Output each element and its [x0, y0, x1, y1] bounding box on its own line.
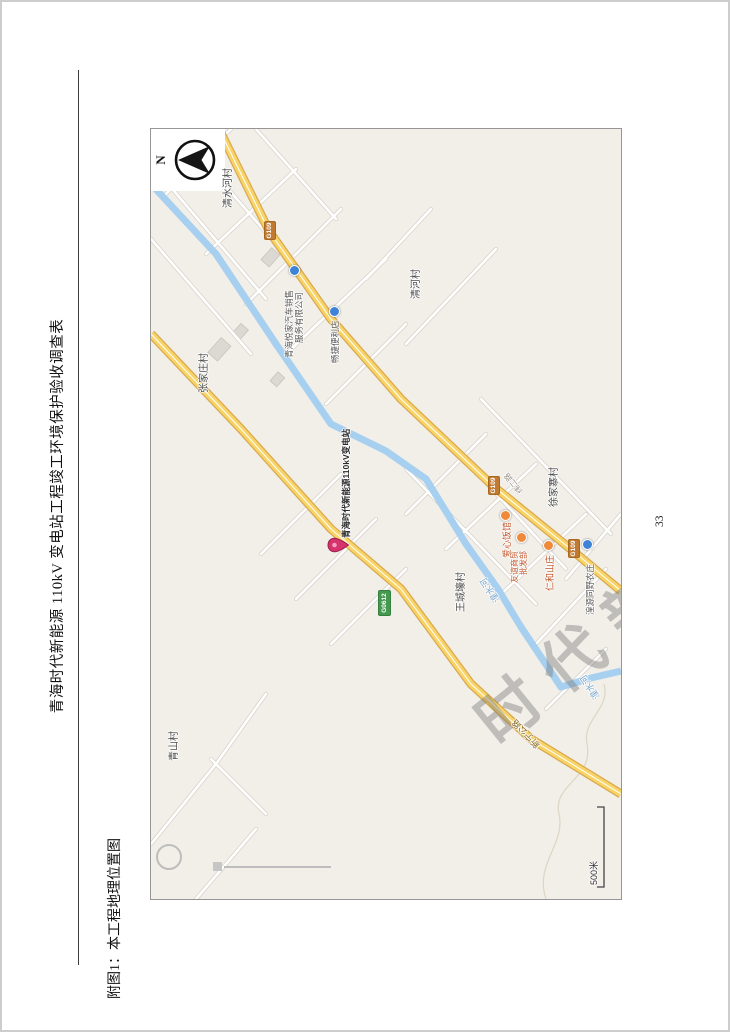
rotated-sheet: 青海时代新能源 110kV 变电站工程竣工环境保护验收调查表 附图1：本工程地理…: [0, 0, 730, 1032]
page-title: 青海时代新能源 110kV 变电站工程竣工环境保护验收调查表: [46, 0, 67, 1032]
road-shield-g109-3: G109: [568, 539, 580, 558]
map-label-qingshuihe-village: 清水河村: [219, 168, 234, 208]
map-label-shop-line2: 批发部: [518, 551, 529, 575]
map-label-convenience-store: 畅捷便利店: [329, 320, 341, 363]
poi-icon-shop: [516, 532, 527, 543]
poi-icon-farm-lodge: [582, 539, 593, 550]
map-label-qinghe-village: 清河村: [407, 269, 422, 299]
poi-icon-restaurant: [500, 510, 511, 521]
figure-caption: 附图1：本工程地理位置图: [104, 838, 124, 999]
location-map: N 时代新能源 G109 G109 G109 G0612: [150, 128, 622, 900]
road-shield-g109-2: G109: [488, 476, 500, 495]
compass-background: N: [151, 129, 225, 191]
map-label-xujiazhai-village: 徐家寨村: [545, 467, 560, 507]
compass-icon: [165, 129, 225, 191]
page-number: 33: [654, 516, 666, 528]
poi-icon-store: [329, 306, 340, 317]
map-label-qingshan-village: 青山村: [165, 731, 180, 761]
road-shield-g109-1: G109: [264, 221, 276, 240]
header-underline: [78, 70, 79, 965]
scale-bar-label: 500米: [587, 861, 600, 885]
map-label-renhe-inn: 仁和山庄: [543, 555, 556, 591]
map-label-zhangjiazhuang-village: 张家庄村: [195, 353, 210, 393]
document-page: 青海时代新能源 110kV 变电站工程竣工环境保护验收调查表 附图1：本工程地理…: [0, 0, 730, 1032]
map-label-wangchenghao-village: 王城壕村: [452, 572, 467, 612]
road-shield-expressway: G0612: [378, 590, 391, 616]
poi-icon-inn: [543, 540, 554, 551]
map-label-farm-lodge: 湟源同野农庄: [584, 564, 596, 615]
map-label-substation-pin: 青海时代新能源110kV变电站: [340, 429, 352, 538]
map-graphics: [151, 129, 621, 899]
poi-icon-car-dealer: [289, 265, 300, 276]
map-label-car-dealer-line2: 服务有限公司: [293, 292, 305, 343]
location-pin-icon: [327, 537, 350, 553]
